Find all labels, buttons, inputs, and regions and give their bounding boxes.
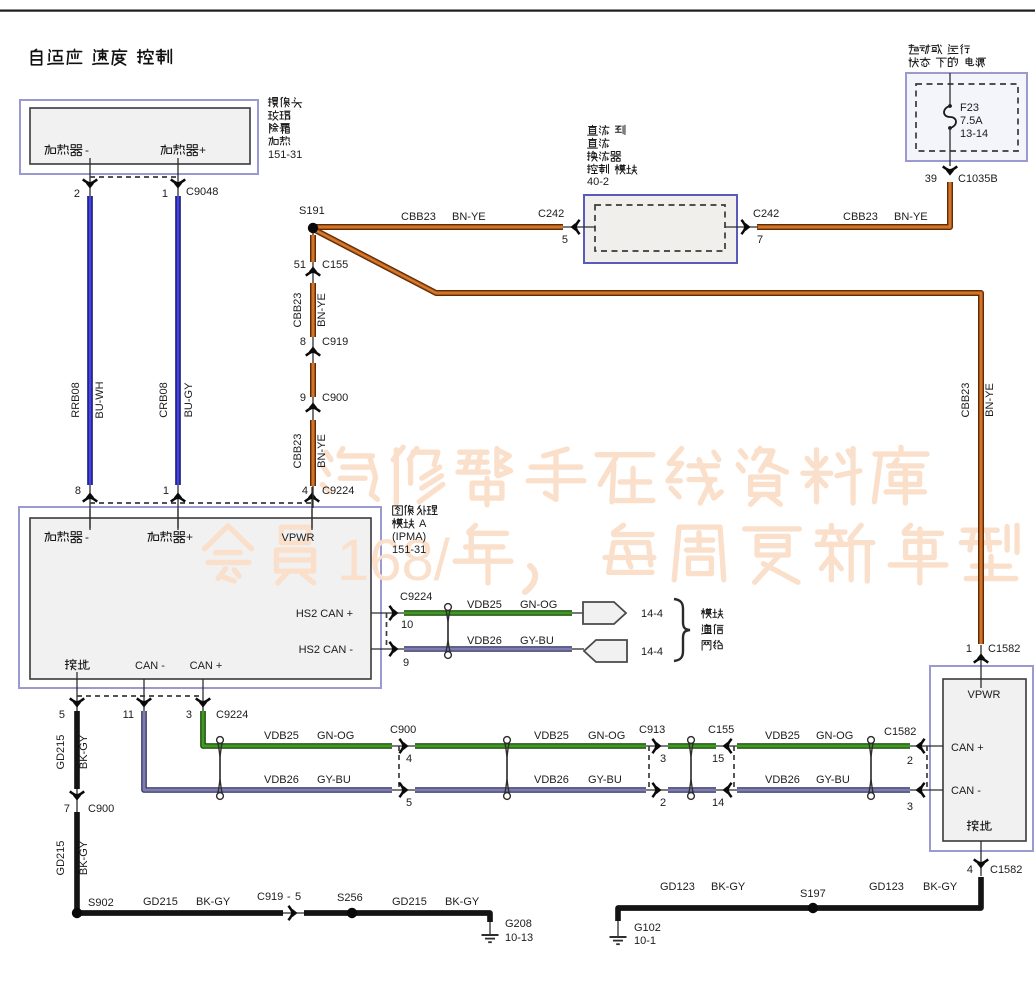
- svg-text:CAN -: CAN -: [135, 660, 165, 672]
- svg-text:S256: S256: [337, 892, 363, 904]
- svg-text:GD215: GD215: [143, 896, 178, 908]
- svg-text:10: 10: [401, 619, 413, 631]
- svg-text:10-13: 10-13: [505, 932, 533, 944]
- svg-text:C155: C155: [322, 259, 348, 271]
- svg-text:-: -: [287, 891, 291, 903]
- svg-text:CAN -: CAN -: [951, 785, 981, 797]
- svg-text:CBB23: CBB23: [960, 383, 972, 418]
- svg-text:VDB26: VDB26: [264, 774, 299, 786]
- svg-text:14-4: 14-4: [641, 608, 663, 620]
- svg-text:CBB23: CBB23: [843, 211, 878, 223]
- svg-text:BK-GY: BK-GY: [711, 881, 746, 893]
- svg-text:BK-GY: BK-GY: [78, 734, 90, 769]
- svg-text:GY-BU: GY-BU: [317, 774, 351, 786]
- svg-text:-: -: [85, 530, 89, 544]
- svg-text:F23: F23: [960, 102, 979, 114]
- svg-text:BN-YE: BN-YE: [316, 293, 328, 327]
- svg-text:5: 5: [406, 797, 412, 809]
- svg-text:C1582: C1582: [990, 864, 1022, 876]
- svg-text:4: 4: [967, 864, 973, 876]
- svg-text:GD215: GD215: [392, 896, 427, 908]
- svg-text:GD215: GD215: [55, 841, 67, 876]
- svg-text:C1582: C1582: [988, 643, 1020, 655]
- svg-text:7: 7: [757, 234, 763, 246]
- svg-text:VPWR: VPWR: [282, 532, 315, 544]
- svg-text:-: -: [85, 143, 89, 157]
- svg-text:3: 3: [186, 709, 192, 721]
- svg-text:CBB23: CBB23: [401, 211, 436, 223]
- svg-text:GN-OG: GN-OG: [317, 730, 354, 742]
- svg-text:HS2 CAN +: HS2 CAN +: [296, 608, 353, 620]
- svg-text:C9048: C9048: [186, 186, 218, 198]
- svg-text:VDB26: VDB26: [765, 774, 800, 786]
- svg-text:C242: C242: [538, 208, 564, 220]
- svg-text:BN-YE: BN-YE: [316, 434, 328, 468]
- svg-text:14-4: 14-4: [641, 646, 663, 658]
- svg-text:S197: S197: [800, 888, 826, 900]
- svg-text:39: 39: [925, 173, 937, 185]
- svg-text:GY-BU: GY-BU: [816, 774, 850, 786]
- svg-text:G208: G208: [505, 918, 532, 930]
- svg-text:RRB08: RRB08: [70, 382, 82, 417]
- svg-text:14: 14: [712, 797, 724, 809]
- svg-text:BN-YE: BN-YE: [984, 383, 996, 417]
- svg-text:4: 4: [406, 753, 412, 765]
- svg-text:G102: G102: [634, 922, 661, 934]
- svg-text:CBB23: CBB23: [292, 434, 304, 469]
- svg-text:2: 2: [907, 755, 913, 767]
- svg-text:BK-GY: BK-GY: [78, 840, 90, 875]
- svg-text:GD215: GD215: [55, 735, 67, 770]
- svg-text:BU-GY: BU-GY: [183, 382, 195, 418]
- svg-text:C9224: C9224: [322, 485, 354, 497]
- svg-text:CAN +: CAN +: [190, 660, 223, 672]
- svg-text:GN-OG: GN-OG: [588, 730, 625, 742]
- svg-text:VDB25: VDB25: [467, 599, 502, 611]
- svg-text:(IPMA): (IPMA): [392, 531, 426, 543]
- svg-text:4: 4: [302, 485, 308, 497]
- svg-text:151-31: 151-31: [392, 544, 426, 556]
- svg-text:8: 8: [300, 336, 306, 348]
- svg-text:7: 7: [64, 803, 70, 815]
- svg-text:GY-BU: GY-BU: [520, 635, 554, 647]
- svg-text:2: 2: [660, 797, 666, 809]
- svg-text:3: 3: [907, 801, 913, 813]
- svg-text:C1035B: C1035B: [958, 173, 998, 185]
- svg-text:13-14: 13-14: [960, 128, 988, 140]
- svg-text:C242: C242: [753, 208, 779, 220]
- svg-text:C919: C919: [322, 336, 348, 348]
- svg-text:3: 3: [660, 753, 666, 765]
- svg-text:BK-GY: BK-GY: [196, 896, 231, 908]
- svg-text:GN-OG: GN-OG: [520, 599, 557, 611]
- svg-text:15: 15: [712, 753, 724, 765]
- svg-text:C900: C900: [88, 803, 114, 815]
- svg-text:9: 9: [300, 392, 306, 404]
- svg-text:GY-BU: GY-BU: [588, 774, 622, 786]
- svg-text:C9224: C9224: [400, 591, 432, 603]
- svg-text:10-1: 10-1: [634, 935, 656, 947]
- svg-text:9: 9: [403, 657, 409, 669]
- svg-text:CBB23: CBB23: [292, 293, 304, 328]
- svg-text:VDB25: VDB25: [534, 730, 569, 742]
- svg-text:VDB26: VDB26: [534, 774, 569, 786]
- svg-text:1: 1: [966, 643, 972, 655]
- svg-text:C900: C900: [390, 724, 416, 736]
- svg-text:CAN +: CAN +: [951, 742, 984, 754]
- svg-text:+: +: [199, 143, 206, 157]
- svg-text:7.5A: 7.5A: [960, 115, 983, 127]
- svg-text:40-2: 40-2: [587, 176, 609, 188]
- svg-text:S902: S902: [88, 897, 114, 909]
- svg-text:BK-GY: BK-GY: [445, 896, 480, 908]
- svg-text:A: A: [419, 518, 427, 530]
- svg-text:5: 5: [59, 709, 65, 721]
- svg-text:GD123: GD123: [660, 881, 695, 893]
- svg-text:HS2 CAN -: HS2 CAN -: [299, 644, 354, 656]
- svg-text:C1582: C1582: [884, 726, 916, 738]
- svg-text:5: 5: [295, 891, 301, 903]
- svg-text:C919: C919: [257, 891, 283, 903]
- svg-text:C900: C900: [322, 392, 348, 404]
- svg-text:BU-WH: BU-WH: [94, 381, 106, 418]
- svg-text:51: 51: [294, 259, 306, 271]
- svg-text:BK-GY: BK-GY: [923, 881, 958, 893]
- svg-text:VDB25: VDB25: [264, 730, 299, 742]
- svg-text:VPWR: VPWR: [968, 689, 1001, 701]
- svg-text:C913: C913: [639, 724, 665, 736]
- svg-text:2: 2: [74, 188, 80, 200]
- svg-text:C9224: C9224: [216, 709, 248, 721]
- svg-text:8: 8: [75, 485, 81, 497]
- svg-text:151-31: 151-31: [268, 149, 302, 161]
- svg-text:GN-OG: GN-OG: [816, 730, 853, 742]
- svg-text:C155: C155: [708, 724, 734, 736]
- svg-text:1: 1: [162, 188, 168, 200]
- svg-text:VDB26: VDB26: [467, 635, 502, 647]
- svg-text:5: 5: [562, 234, 568, 246]
- svg-text:VDB25: VDB25: [765, 730, 800, 742]
- svg-text:CRB08: CRB08: [158, 382, 170, 417]
- svg-text:11: 11: [123, 709, 134, 721]
- svg-text:GD123: GD123: [869, 881, 904, 893]
- svg-text:BN-YE: BN-YE: [452, 211, 486, 223]
- svg-text:1: 1: [163, 485, 169, 497]
- svg-text:S191: S191: [299, 205, 325, 217]
- svg-text:+: +: [186, 530, 193, 544]
- svg-text:BN-YE: BN-YE: [894, 211, 928, 223]
